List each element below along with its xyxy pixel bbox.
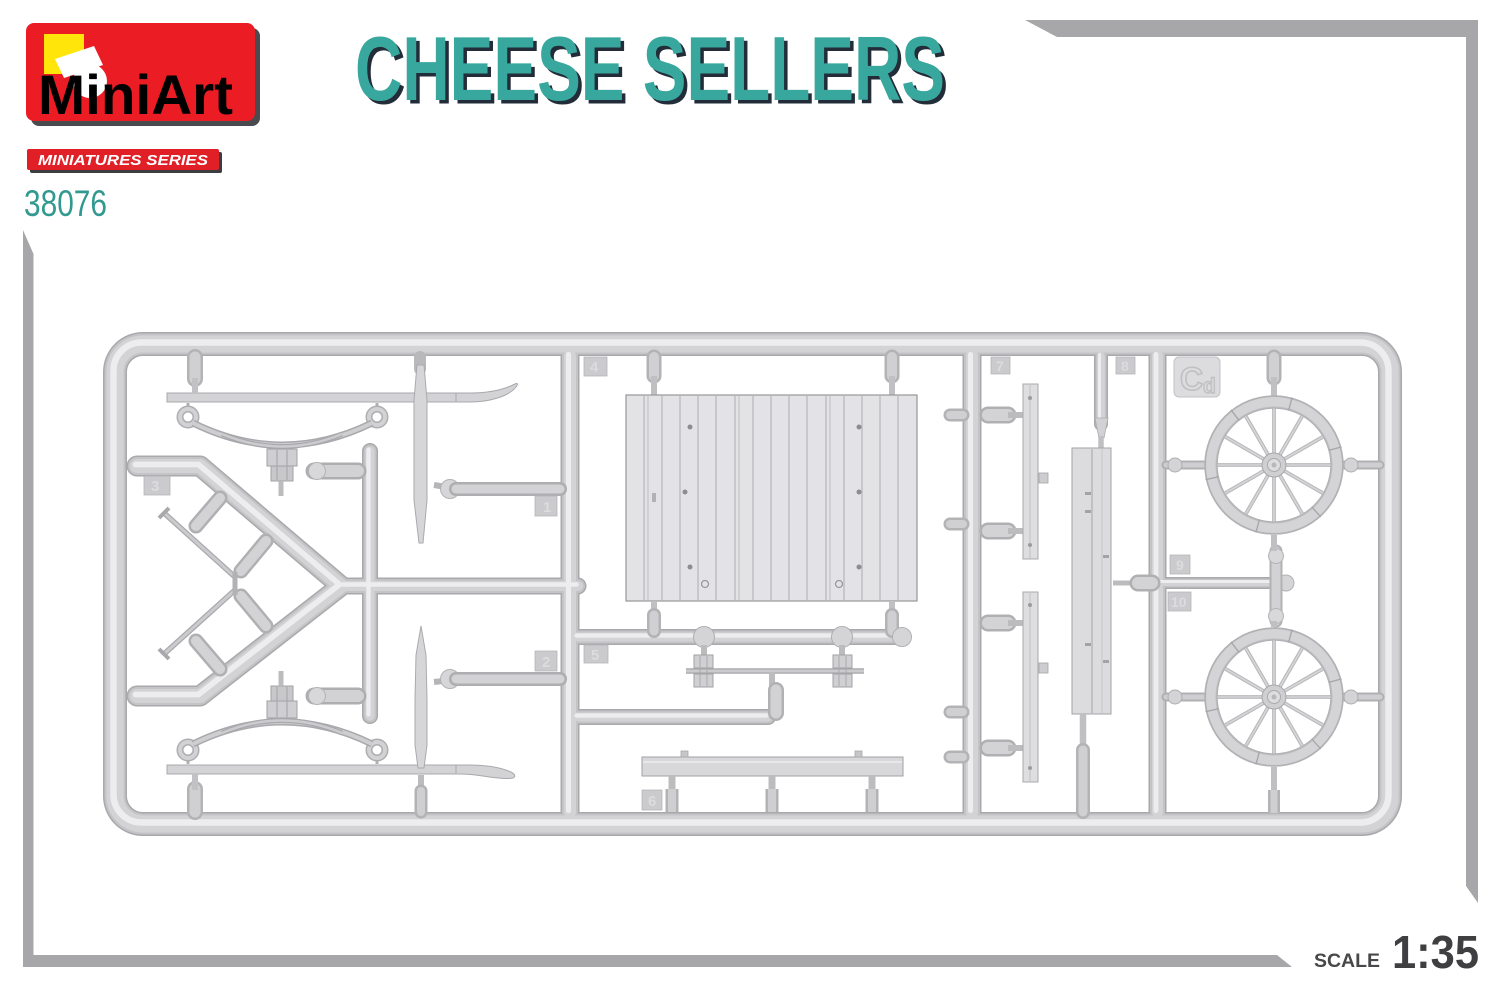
svg-text:5: 5 [591,647,599,664]
svg-text:10: 10 [1171,594,1187,610]
svg-text:MiniArt: MiniArt [38,63,233,126]
svg-text:6: 6 [648,793,656,810]
svg-text:3: 3 [151,478,159,495]
svg-text:8: 8 [1121,358,1129,374]
svg-text:2: 2 [542,654,550,671]
svg-text:9: 9 [1176,557,1184,573]
svg-text:7: 7 [996,358,1004,374]
svg-text:1:35: 1:35 [1392,926,1479,978]
svg-text:CHEESE SELLERS: CHEESE SELLERS [355,18,945,120]
svg-text:1: 1 [543,499,551,516]
svg-text:SCALE: SCALE [1314,951,1380,972]
svg-text:d: d [1203,375,1216,398]
svg-text:38076: 38076 [24,183,107,224]
svg-text:C: C [1180,361,1203,397]
svg-text:MINIATURES SERIES: MINIATURES SERIES [38,152,208,169]
svg-text:4: 4 [590,359,599,376]
